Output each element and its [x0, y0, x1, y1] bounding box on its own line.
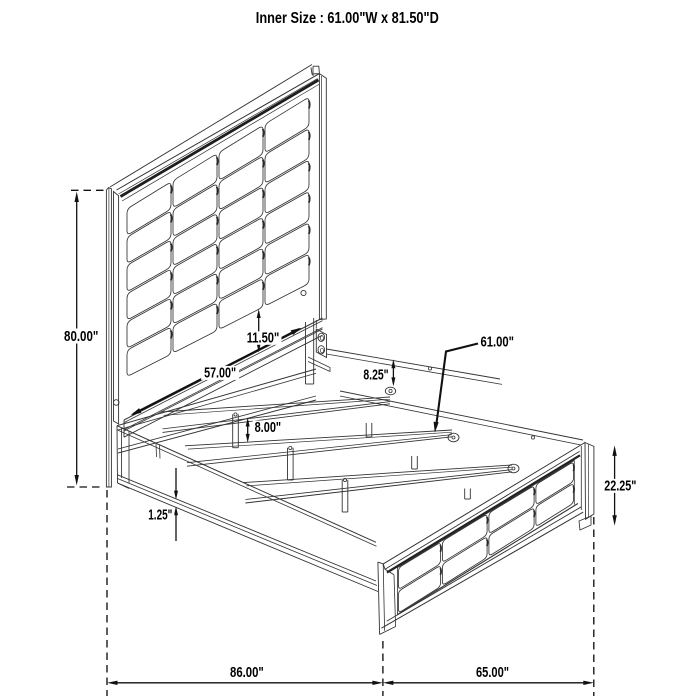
svg-text:86.00": 86.00" — [230, 664, 264, 681]
svg-text:1.25": 1.25" — [148, 506, 172, 523]
svg-text:8.00": 8.00" — [255, 419, 282, 436]
svg-text:Inner Size : 61.00"W x 81.50"D: Inner Size : 61.00"W x 81.50"D — [256, 10, 439, 27]
svg-text:57.00": 57.00" — [204, 364, 236, 381]
svg-text:65.00": 65.00" — [476, 664, 509, 681]
svg-text:80.00": 80.00" — [64, 328, 98, 345]
svg-text:11.50": 11.50" — [247, 329, 280, 346]
svg-text:61.00": 61.00" — [481, 334, 515, 351]
svg-text:22.25": 22.25" — [604, 477, 636, 494]
svg-text:8.25": 8.25" — [363, 367, 388, 384]
